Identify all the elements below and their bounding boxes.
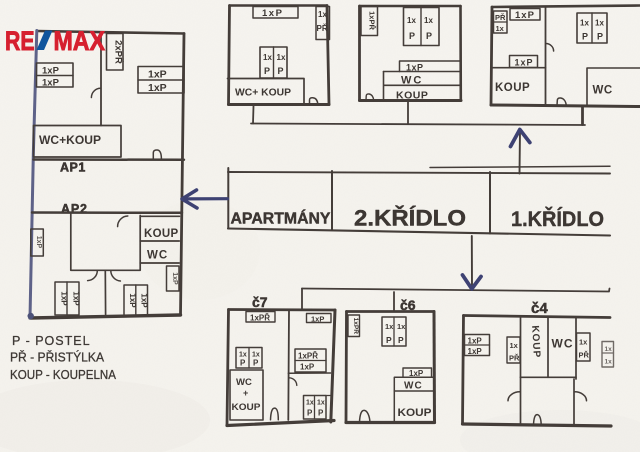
svg-text:1xP: 1xP [148,69,167,81]
svg-text:2.KŘÍDLO: 2.KŘÍDLO [354,206,466,231]
svg-text:WC+KOUP: WC+KOUP [39,135,101,147]
svg-text:AP1: AP1 [60,161,86,175]
svg-text:P: P [307,409,313,418]
svg-text:1xP: 1xP [515,58,534,68]
svg-text:1x: 1x [263,53,272,62]
svg-text:P: P [398,335,404,345]
svg-text:1x: 1x [277,53,286,62]
svg-text:1x: 1x [318,10,327,19]
svg-text:1x: 1x [385,322,394,331]
svg-text:1x: 1x [605,359,613,366]
svg-text:1xP: 1xP [262,8,283,19]
svg-text:1x: 1x [496,24,505,33]
svg-text:1x: 1x [605,346,613,353]
svg-text:1x: 1x [424,16,433,25]
svg-text:1xPŘ: 1xPŘ [298,352,318,361]
svg-text:1xP: 1xP [42,78,60,89]
svg-text:KOUP: KOUP [398,407,432,419]
svg-text:WC: WC [552,337,574,351]
svg-text:PŘ - PŘISTÝLKA: PŘ - PŘISTÝLKA [10,350,105,365]
svg-text:1xP: 1xP [468,347,483,356]
svg-text:1x: 1x [397,322,406,331]
svg-text:1xP: 1xP [515,10,535,21]
svg-text:1x: 1x [306,400,314,407]
svg-text:P: P [426,31,432,41]
svg-text:P - POSTEL: P - POSTEL [12,334,91,348]
svg-text:1xP: 1xP [468,337,483,346]
svg-text:1x: 1x [252,352,260,359]
svg-text:P: P [253,359,259,368]
svg-text:P: P [264,66,270,76]
svg-text:1x: 1x [595,19,604,28]
svg-text:APARTMÁNY: APARTMÁNY [231,209,331,228]
svg-text:1x: 1x [317,400,325,407]
svg-text:1x: 1x [510,341,519,350]
svg-text:1xP: 1xP [140,293,149,308]
svg-text:P: P [597,32,603,42]
svg-text:1xP: 1xP [300,363,315,372]
svg-text:1x: 1x [580,19,589,28]
svg-text:P: P [386,335,392,345]
svg-text:č4: č4 [531,300,548,317]
svg-text:WC: WC [147,250,168,262]
svg-text:KOUP: KOUP [529,325,542,358]
svg-text:KOUP: KOUP [144,228,178,240]
svg-text:P: P [582,32,588,42]
svg-text:PŘ: PŘ [509,354,520,363]
svg-text:1xP: 1xP [311,315,324,324]
svg-text:KOUP: KOUP [232,402,261,412]
svg-text:1xP: 1xP [128,293,137,308]
svg-text:1xPŘ: 1xPŘ [250,314,270,323]
svg-text:1xPŘ: 1xPŘ [368,11,377,30]
svg-text:1x: 1x [579,338,588,347]
svg-text:1xP: 1xP [60,291,69,306]
svg-text:MAX: MAX [54,26,106,56]
svg-text:1xP: 1xP [148,82,167,94]
svg-text:WC+ KOUP: WC+ KOUP [235,87,291,99]
svg-text:2xPŘ: 2xPŘ [113,40,125,64]
svg-text:WC: WC [236,377,252,388]
svg-text:1x: 1x [407,16,416,25]
svg-text:P: P [278,66,284,76]
svg-text:KOUP: KOUP [495,82,530,94]
svg-text:P: P [409,31,415,41]
svg-text:WC: WC [404,381,423,392]
svg-text:KOUP - KOUPELNA: KOUP - KOUPELNA [10,368,117,382]
svg-text:+: + [243,388,248,398]
svg-text:1xP: 1xP [42,66,60,77]
svg-text:1xPŘ: 1xPŘ [352,318,361,335]
svg-text:č7: č7 [252,294,268,310]
svg-text:WC: WC [593,85,613,97]
svg-text:PŘ: PŘ [495,13,506,22]
svg-text:1x: 1x [239,352,247,359]
svg-text:1xP: 1xP [72,291,81,306]
svg-text:PŘ: PŘ [317,24,328,33]
svg-text:1.KŘÍDLO: 1.KŘÍDLO [511,207,604,231]
svg-text:P: P [318,409,324,418]
svg-text:PŘ: PŘ [579,351,590,360]
svg-text:KOUP: KOUP [396,90,428,102]
svg-text:1xP: 1xP [35,236,42,249]
svg-text:AP2: AP2 [61,202,88,216]
svg-text:P: P [240,359,246,368]
svg-text:RE: RE [5,26,35,56]
svg-text:1xP: 1xP [171,272,178,285]
